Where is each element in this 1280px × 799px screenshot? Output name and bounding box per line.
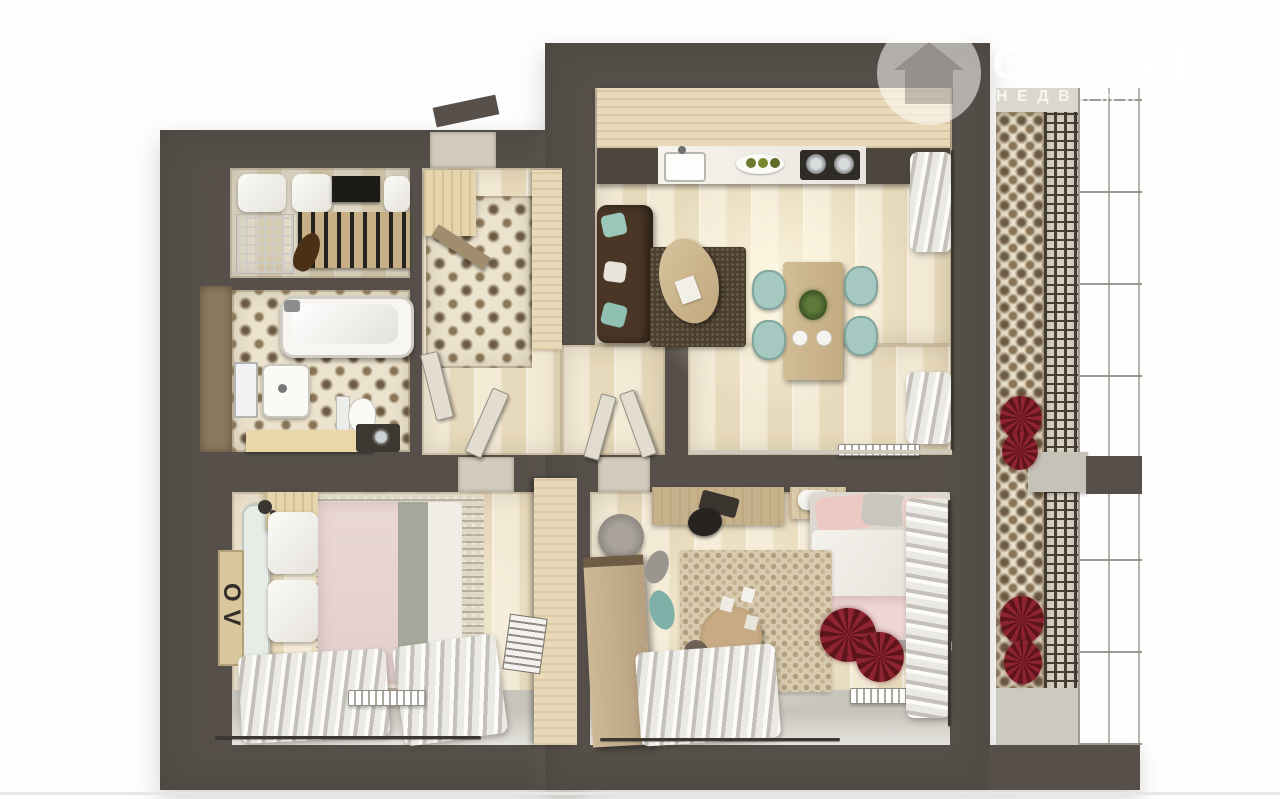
bedroom1-wall-poster: OV xyxy=(218,550,244,666)
dining-chair-3 xyxy=(844,266,878,306)
dining-plate-1 xyxy=(792,330,808,346)
kitchen-sink xyxy=(664,152,706,182)
closet-tv-box xyxy=(332,176,380,202)
stove-pot-2 xyxy=(834,154,854,174)
dining-table xyxy=(783,262,843,380)
bedroom2-curtain-rod-bottom xyxy=(600,738,840,741)
closet-pillow-stack-2 xyxy=(292,174,332,212)
bed2-pillow-grey xyxy=(861,492,908,528)
closet-towels xyxy=(384,176,410,212)
balcony-divider-wall xyxy=(1086,456,1142,494)
dining-chair-2 xyxy=(752,320,786,360)
bedroom2-curtain-rod-right xyxy=(948,500,951,726)
entry-door-open-leaf xyxy=(433,95,500,128)
stove-pot-1 xyxy=(806,154,826,174)
living-curtain-rod xyxy=(951,150,954,450)
bed1-pillows-top xyxy=(268,512,318,574)
fruit-plate xyxy=(736,154,784,174)
fruit-apples xyxy=(746,158,756,168)
dining-centerpiece-plant xyxy=(799,290,827,320)
bottom-edge-line xyxy=(0,792,1280,795)
balcony-plant-red-lower xyxy=(1000,596,1044,644)
bathroom-wall-niche xyxy=(200,286,232,452)
dining-chair-1 xyxy=(752,270,786,310)
floor-plan-render: OV ONREALT НЕДВИЖИМОСТЬ xyxy=(0,0,1280,799)
closet-wire-rack xyxy=(236,214,294,274)
watermark: ONREALT НЕДВИЖИМОСТЬ xyxy=(874,16,1254,116)
bedroom2-curtain-bottom xyxy=(635,643,781,747)
dining-chair-4 xyxy=(844,316,878,356)
balcony-floor-concrete xyxy=(996,688,1078,745)
hall-cabinet xyxy=(424,170,476,236)
entry-doorway xyxy=(430,132,496,168)
bathtub-faucet xyxy=(284,300,300,312)
bathroom-sink-faucet xyxy=(278,384,287,393)
bedroom1-curtain-rod xyxy=(215,736,481,739)
watermark-tagline: НЕДВИЖИМОСТЬ xyxy=(996,88,1251,106)
closet-pillow-stack-1 xyxy=(238,174,286,212)
washing-machine-door xyxy=(372,428,390,446)
kitchen-faucet xyxy=(678,146,686,154)
watermark-brand: ONREALT xyxy=(992,36,1232,90)
living-curtain-bottom xyxy=(906,372,952,444)
bathroom-counter xyxy=(246,430,374,452)
bedroom1-doorway xyxy=(458,457,514,492)
bedroom2-pouf xyxy=(598,514,644,560)
balcony-glazing xyxy=(1078,88,1142,745)
wall-under-balcony xyxy=(990,745,1140,790)
sofa-pillow-2 xyxy=(603,261,628,284)
bedroom2-doorway xyxy=(598,457,650,492)
bed1-pillows-bottom xyxy=(268,580,318,642)
bed1-lamp-top xyxy=(258,500,272,514)
bedroom1-wardrobe xyxy=(534,478,577,745)
balcony-plant-red-lower2 xyxy=(1004,640,1042,684)
living-curtain-top xyxy=(910,152,952,252)
bedroom1-books xyxy=(502,614,547,675)
bedroom2-plant-red-2 xyxy=(856,632,904,682)
bedroom1-radiator xyxy=(348,690,426,706)
living-south-window-frame xyxy=(690,450,952,454)
bathtub-basin xyxy=(292,304,398,344)
balcony-lattice-screen xyxy=(1044,112,1078,745)
house-circle-icon xyxy=(874,18,984,128)
balcony-divider-slab xyxy=(1028,452,1088,492)
bathroom-mirror xyxy=(234,362,258,418)
dining-plate-2 xyxy=(816,330,832,346)
balcony-plant-red-upper2 xyxy=(1002,432,1038,470)
poster-text: OV xyxy=(217,583,245,634)
bedroom2-curtain-right xyxy=(906,498,950,718)
hall-wardrobe-column xyxy=(532,170,562,350)
